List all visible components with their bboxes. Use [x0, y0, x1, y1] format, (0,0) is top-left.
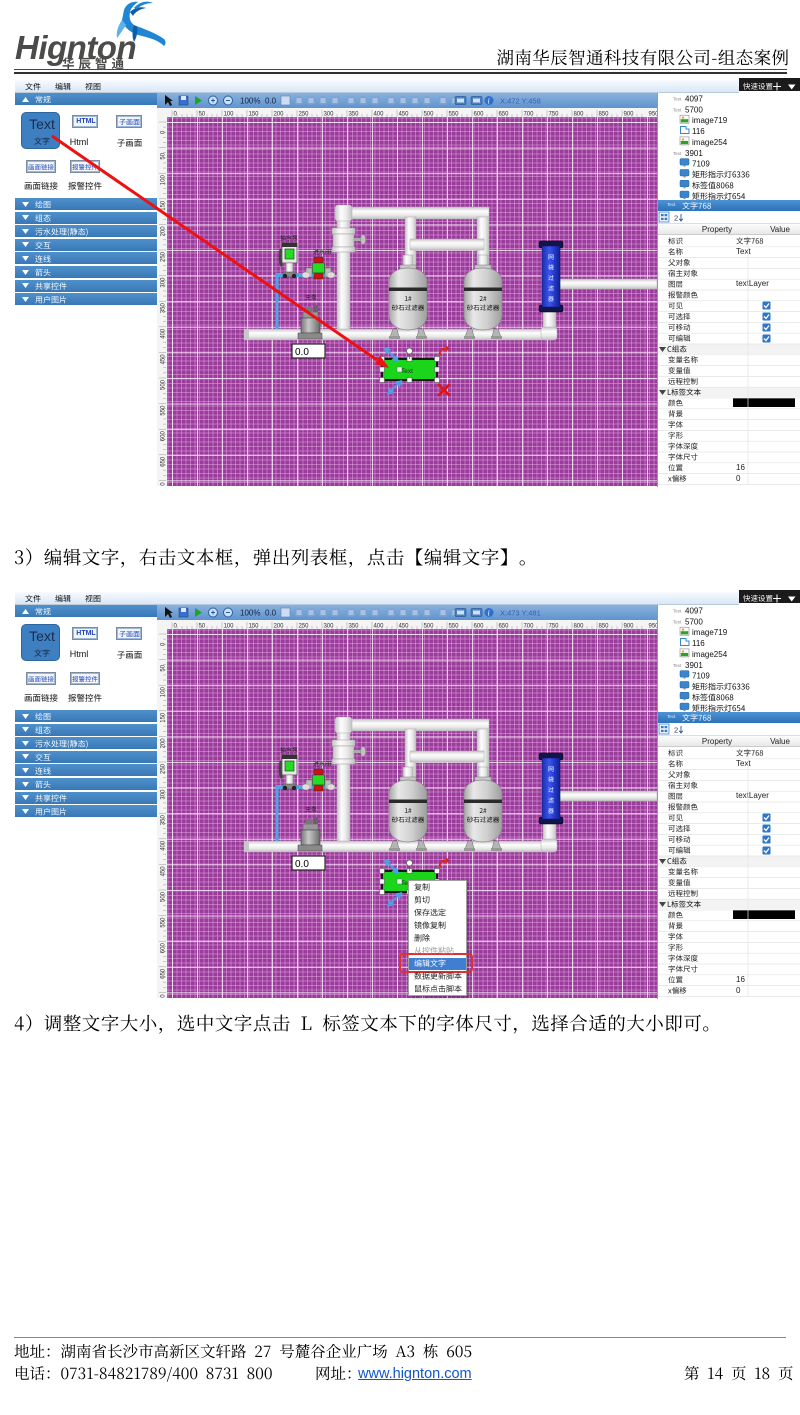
svg-text:image254: image254	[692, 650, 728, 659]
svg-text:450: 450	[161, 354, 167, 365]
svg-text:50: 50	[161, 664, 167, 671]
svg-text:image719: image719	[692, 116, 728, 125]
svg-text:4097: 4097	[685, 607, 703, 616]
svg-text:600: 600	[161, 431, 167, 442]
svg-text:650: 650	[161, 968, 167, 979]
svg-text:Text: Text	[673, 151, 682, 156]
svg-text:150: 150	[161, 712, 167, 723]
svg-text:400: 400	[161, 840, 167, 851]
svg-text:2: 2	[674, 214, 678, 223]
svg-text:250: 250	[161, 251, 167, 262]
svg-text:550: 550	[161, 917, 167, 928]
svg-text:image719: image719	[692, 628, 728, 637]
svg-text:Text: Text	[673, 663, 682, 668]
svg-text:300: 300	[161, 277, 167, 288]
svg-text:7109: 7109	[692, 160, 710, 169]
svg-text:100: 100	[161, 687, 167, 698]
svg-text:300: 300	[161, 789, 167, 800]
svg-text:5700: 5700	[685, 105, 703, 114]
svg-text:0: 0	[161, 642, 167, 646]
svg-text:3901: 3901	[685, 149, 703, 158]
svg-text:250: 250	[161, 763, 167, 774]
svg-text:Text: Text	[673, 97, 682, 102]
svg-text:7109: 7109	[692, 672, 710, 681]
svg-text:700: 700	[161, 994, 167, 998]
svg-text:350: 350	[161, 303, 167, 314]
svg-text:650: 650	[161, 456, 167, 467]
svg-text:116: 116	[692, 127, 705, 136]
svg-text:400: 400	[161, 328, 167, 339]
svg-text:4097: 4097	[685, 95, 703, 104]
svg-text:500: 500	[161, 379, 167, 390]
svg-text:150: 150	[161, 200, 167, 211]
svg-text:image254: image254	[692, 138, 728, 147]
svg-text:600: 600	[161, 943, 167, 954]
svg-text:450: 450	[161, 866, 167, 877]
svg-text:Text: Text	[673, 609, 682, 614]
svg-text:3901: 3901	[685, 661, 703, 670]
svg-text:i: i	[488, 609, 490, 618]
svg-text:2: 2	[674, 726, 678, 735]
svg-text:Text: Text	[673, 619, 682, 624]
svg-text:X:472 Y:458: X:472 Y:458	[500, 97, 541, 106]
svg-text:700: 700	[161, 482, 167, 486]
svg-text:550: 550	[161, 405, 167, 416]
svg-text:350: 350	[161, 815, 167, 826]
svg-text:50: 50	[161, 152, 167, 159]
svg-text:100%: 100%	[240, 97, 260, 106]
svg-text:500: 500	[161, 891, 167, 902]
svg-text:200: 200	[161, 738, 167, 749]
svg-text:5700: 5700	[685, 617, 703, 626]
svg-text:200: 200	[161, 226, 167, 237]
svg-text:100: 100	[161, 175, 167, 186]
svg-text:100%: 100%	[240, 609, 260, 618]
svg-text:i: i	[488, 97, 490, 106]
svg-text:X:473 Y:481: X:473 Y:481	[500, 609, 541, 618]
svg-text:0.0: 0.0	[265, 97, 277, 106]
svg-text:0.0: 0.0	[265, 609, 277, 618]
svg-text:Text: Text	[673, 107, 682, 112]
svg-text:116: 116	[692, 639, 705, 648]
svg-text:0: 0	[161, 130, 167, 134]
